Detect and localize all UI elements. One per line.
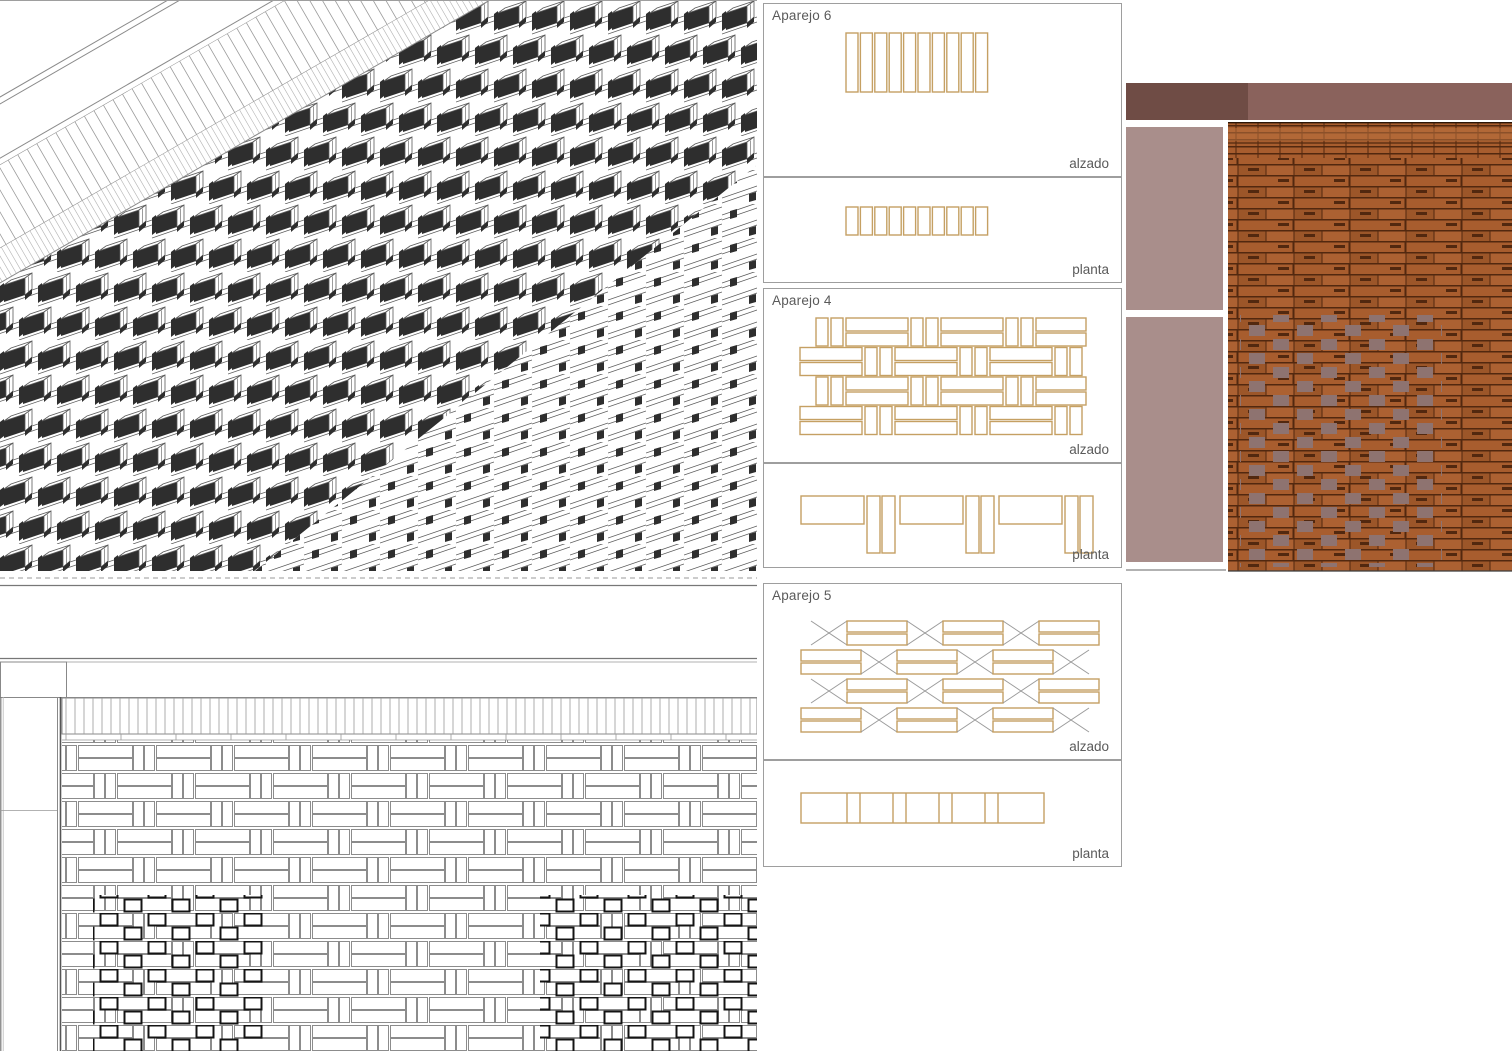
- aparejo4-planta-label: planta: [1072, 547, 1109, 562]
- rendered-brick-view[interactable]: [1126, 0, 1512, 575]
- aparejo6-alzado-label: alzado: [1069, 156, 1109, 171]
- aparejo6-planta-box[interactable]: planta: [763, 177, 1122, 283]
- aparejo4-alzado-label: alzado: [1069, 442, 1109, 457]
- aparejo6-alzado-box[interactable]: Aparejo 6 alzado: [763, 3, 1122, 177]
- aparejo6-planta-label: planta: [1072, 262, 1109, 277]
- aparejo4-alzado-box[interactable]: Aparejo 4 alzado: [763, 288, 1122, 463]
- aparejo6-title: Aparejo 6: [772, 8, 832, 23]
- elevation-2d-view[interactable]: [0, 577, 757, 1051]
- aparejo5-planta-box[interactable]: planta: [763, 760, 1122, 867]
- drawing-sheet: Aparejo 6 alzado planta Aparejo 4 alzado…: [0, 0, 1512, 1051]
- aparejo4-title: Aparejo 4: [772, 293, 832, 308]
- aparejo4-planta-box[interactable]: planta: [763, 463, 1122, 568]
- aparejo5-alzado-box[interactable]: Aparejo 5 alzado: [763, 583, 1122, 760]
- aparejo5-title: Aparejo 5: [772, 588, 832, 603]
- aparejo5-planta-label: planta: [1072, 846, 1109, 861]
- axonometric-3d-view[interactable]: [0, 0, 757, 575]
- aparejo5-alzado-label: alzado: [1069, 739, 1109, 754]
